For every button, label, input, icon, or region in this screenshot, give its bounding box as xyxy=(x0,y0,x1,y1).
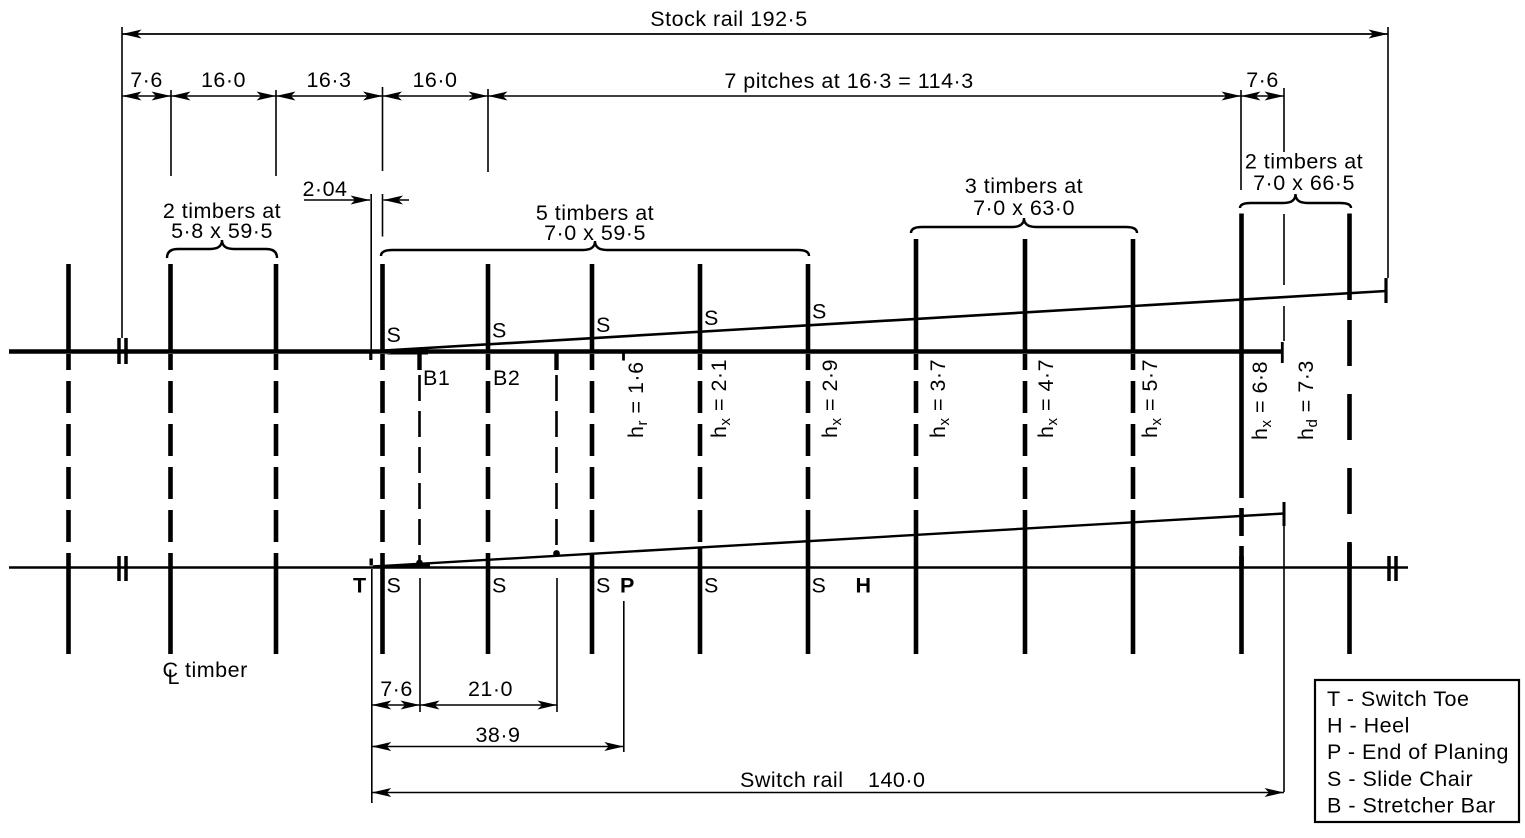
svg-text:hd = 7·3: hd = 7·3 xyxy=(1294,360,1321,440)
svg-text:hx = 5·7: hx = 5·7 xyxy=(1138,359,1165,438)
svg-text:hx = 2·9: hx = 2·9 xyxy=(818,359,845,438)
svg-text:P - End of Planing: P - End of Planing xyxy=(1327,740,1509,764)
svg-text:L: L xyxy=(168,665,180,689)
svg-text:S: S xyxy=(596,574,611,598)
svg-text:S: S xyxy=(704,306,719,330)
svg-text:7·0 x 66·5: 7·0 x 66·5 xyxy=(1253,171,1355,195)
svg-text:5·8 x 59·5: 5·8 x 59·5 xyxy=(171,219,273,243)
svg-text:hr = 1·6: hr = 1·6 xyxy=(624,361,651,438)
svg-text:T - Switch Toe: T - Switch Toe xyxy=(1327,687,1469,711)
svg-text:T: T xyxy=(353,574,367,598)
svg-text:timber: timber xyxy=(185,658,248,682)
svg-text:S: S xyxy=(492,319,507,343)
svg-text:7·6: 7·6 xyxy=(1246,68,1279,92)
svg-text:7·6: 7·6 xyxy=(130,68,163,92)
svg-text:hx = 2·1: hx = 2·1 xyxy=(707,359,734,438)
svg-text:S: S xyxy=(812,574,827,598)
svg-text:Switch rail: Switch rail xyxy=(740,768,843,792)
svg-text:S: S xyxy=(596,313,611,337)
svg-text:Stock rail 192·5: Stock rail 192·5 xyxy=(650,7,807,31)
svg-text:16·3: 16·3 xyxy=(306,68,351,92)
svg-text:S: S xyxy=(812,300,827,324)
svg-text:S - Slide Chair: S - Slide Chair xyxy=(1327,767,1473,791)
svg-text:B - Stretcher Bar: B - Stretcher Bar xyxy=(1327,793,1496,817)
svg-text:S: S xyxy=(387,323,402,347)
svg-text:38·9: 38·9 xyxy=(475,723,520,747)
svg-text:B2: B2 xyxy=(493,366,520,390)
svg-text:3 timbers at: 3 timbers at xyxy=(965,174,1083,198)
svg-text:7·0 x 63·0: 7·0 x 63·0 xyxy=(973,196,1075,220)
svg-text:7 pitches at 16·3 = 114·3: 7 pitches at 16·3 = 114·3 xyxy=(724,69,973,93)
svg-text:hx = 4·7: hx = 4·7 xyxy=(1034,359,1061,438)
svg-text:7·0 x 59·5: 7·0 x 59·5 xyxy=(544,221,646,245)
svg-text:16·0: 16·0 xyxy=(201,68,246,92)
svg-text:2 timbers at: 2 timbers at xyxy=(1245,150,1363,174)
svg-text:B1: B1 xyxy=(423,366,450,390)
svg-text:hx = 3·7: hx = 3·7 xyxy=(926,359,953,438)
svg-text:S: S xyxy=(704,574,719,598)
svg-text:S: S xyxy=(492,574,507,598)
svg-text:H: H xyxy=(856,574,872,598)
svg-text:16·0: 16·0 xyxy=(412,68,457,92)
svg-text:140·0: 140·0 xyxy=(868,768,926,792)
svg-text:2·04: 2·04 xyxy=(302,177,347,201)
svg-text:21·0: 21·0 xyxy=(468,677,513,701)
svg-text:S: S xyxy=(387,574,402,598)
svg-text:7·6: 7·6 xyxy=(380,677,413,701)
svg-text:H - Heel: H - Heel xyxy=(1327,714,1410,738)
svg-text:hx = 6·8: hx = 6·8 xyxy=(1248,361,1275,440)
svg-text:P: P xyxy=(620,574,635,598)
